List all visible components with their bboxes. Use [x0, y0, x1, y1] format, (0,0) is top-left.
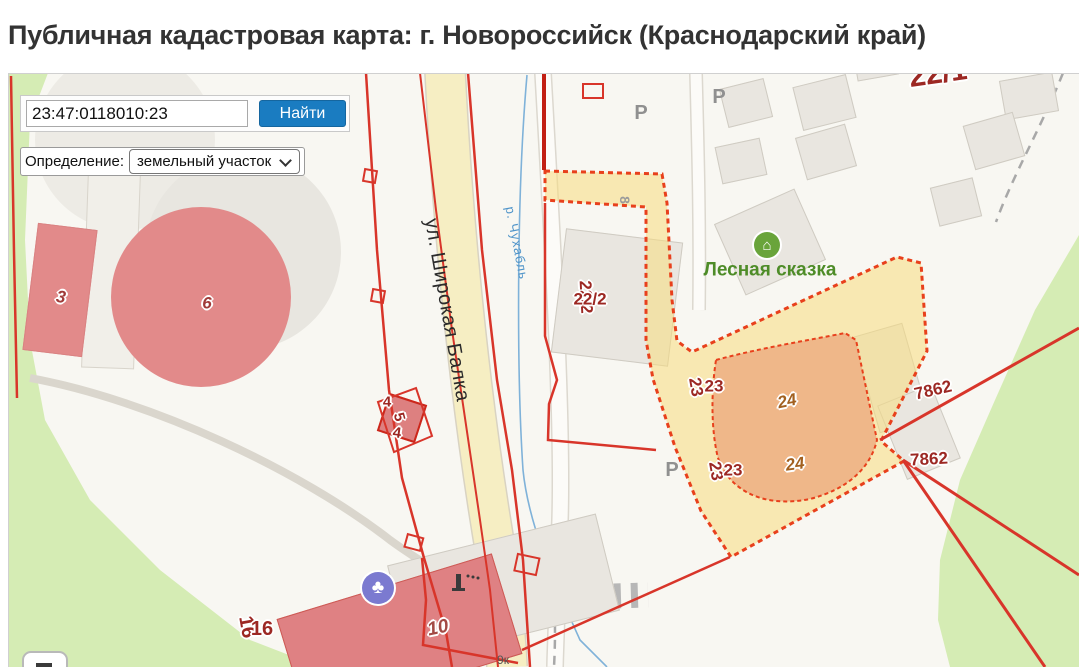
building-24-label: 24 [776, 391, 798, 412]
marker-8-label: 8 [618, 196, 632, 204]
parking-label: Р [634, 103, 647, 123]
cadastral-vertex-marker [371, 289, 385, 303]
cadastral-line [422, 558, 518, 663]
building-24-label: 24 [784, 454, 805, 473]
building-9k-label: 9к [497, 654, 509, 666]
cadastral-line [880, 328, 1079, 440]
cadastral-line [522, 557, 730, 650]
parking-label: Р [665, 460, 678, 480]
page-title: Публичная кадастровая карта: г. Новоросс… [8, 20, 926, 51]
parcel-7862-label: 7862 [910, 450, 949, 469]
definition-select[interactable]: земельный участок [129, 149, 300, 174]
parcel-23-label: 23 [724, 462, 743, 479]
definition-label: Определение: [25, 153, 124, 170]
parcel-23-label: 23 [686, 376, 706, 398]
page: Публичная кадастровая карта: г. Новоросс… [0, 0, 1079, 667]
forest-tale-icon[interactable]: ⌂ [754, 232, 780, 258]
layers-icon [36, 663, 52, 667]
monument-icon [452, 574, 480, 591]
definition-filter-panel: Определение: земельный участок [20, 147, 305, 176]
sevastopolets-resort-icon[interactable]: ♣ [362, 572, 394, 604]
cadastral-line [903, 460, 1079, 575]
cadastral-line [545, 203, 656, 450]
cadastral-vertex-marker [583, 84, 603, 98]
parking-label: Р [712, 87, 725, 107]
search-panel: Найти [20, 95, 350, 132]
cadastral-line [11, 76, 17, 398]
cadastral-vertex-marker [514, 554, 539, 575]
chevron-down-icon [279, 154, 292, 167]
forest-tale-label: Лесная сказка [703, 261, 836, 280]
parcel-22-2-label: 22/2 [573, 291, 606, 308]
map-layers-button[interactable] [22, 651, 68, 667]
parcel-23-label: 23 [705, 378, 724, 395]
cadastral-number-input[interactable] [26, 100, 248, 127]
parcel-16-label: 16 [251, 619, 273, 639]
building-6-label: 6 [202, 295, 211, 312]
cadastral-line [903, 460, 1045, 667]
parcel-4-label: 4 [383, 395, 391, 410]
cadastral-vertex-marker [363, 169, 377, 183]
find-button[interactable]: Найти [259, 100, 346, 127]
definition-selected-value: земельный участок [137, 153, 271, 170]
building-10-label: 10 [426, 617, 451, 640]
